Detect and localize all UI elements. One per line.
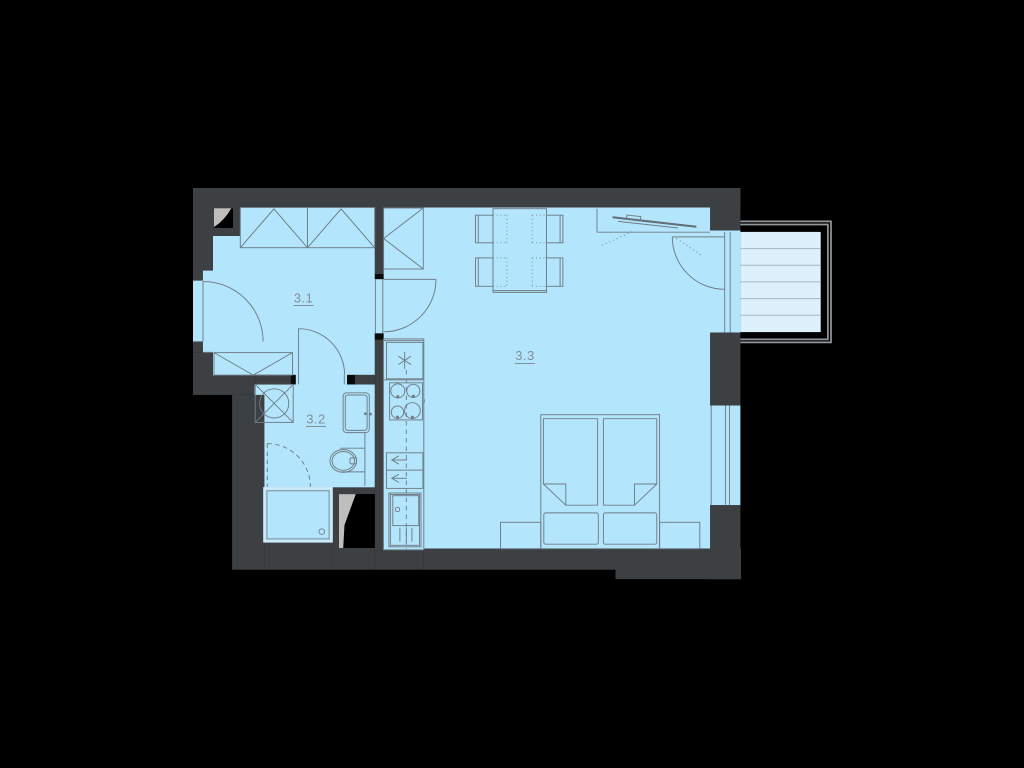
svg-text:3.1: 3.1 [294,291,314,306]
svg-text:3.3: 3.3 [515,348,535,363]
svg-text:3.2: 3.2 [306,412,326,427]
